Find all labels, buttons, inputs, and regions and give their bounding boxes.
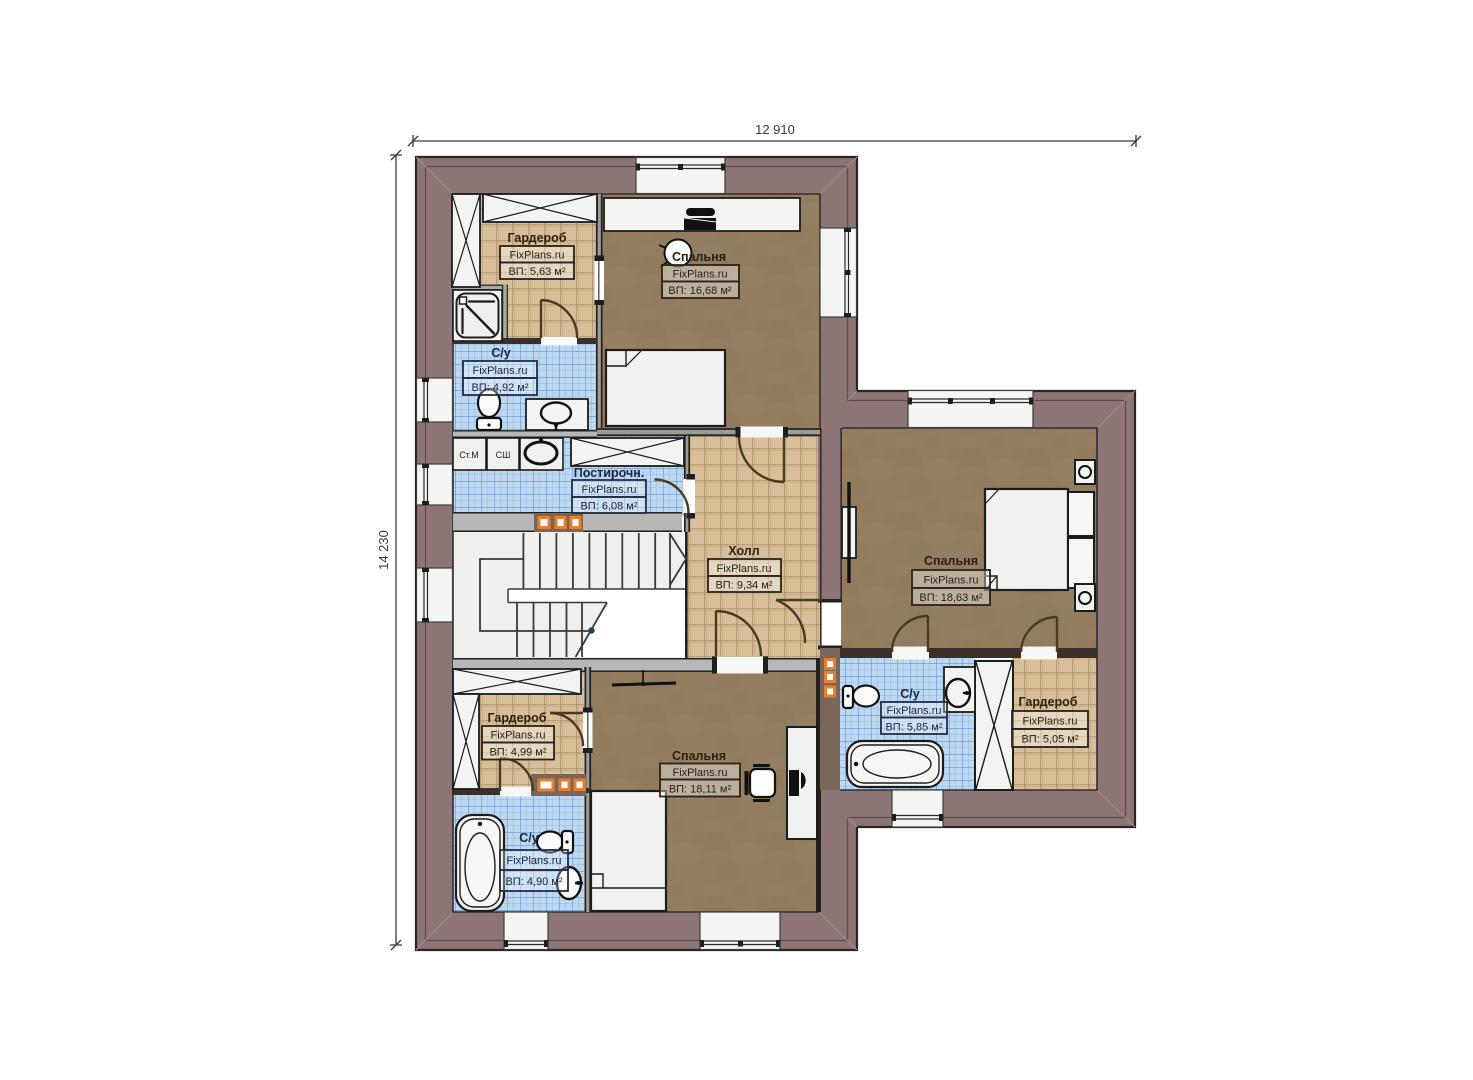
svg-text:FixPlans.ru: FixPlans.ru <box>1022 716 1077 728</box>
svg-text:ВП: 6,08 м²: ВП: 6,08 м² <box>580 501 637 513</box>
svg-text:Гардероб: Гардероб <box>1018 695 1077 709</box>
svg-text:Гардероб: Гардероб <box>507 231 566 245</box>
svg-text:С/у: С/у <box>900 687 920 701</box>
svg-text:ВП: 18,63 м²: ВП: 18,63 м² <box>919 592 983 604</box>
svg-text:Гардероб: Гардероб <box>487 711 546 725</box>
svg-text:ВП: 16,68 м²: ВП: 16,68 м² <box>668 285 732 297</box>
svg-text:FixPlans.ru: FixPlans.ru <box>472 365 527 377</box>
svg-text:FixPlans.ru: FixPlans.ru <box>506 855 561 867</box>
svg-text:ВП: 9,34 м²: ВП: 9,34 м² <box>715 580 772 592</box>
svg-text:FixPlans.ru: FixPlans.ru <box>923 575 978 587</box>
svg-text:Спальня: Спальня <box>672 749 726 763</box>
svg-text:ВП: 5,63 м²: ВП: 5,63 м² <box>508 266 565 278</box>
svg-text:FixPlans.ru: FixPlans.ru <box>716 563 771 575</box>
svg-text:FixPlans.ru: FixPlans.ru <box>490 730 545 742</box>
svg-text:С/у: С/у <box>519 831 539 845</box>
svg-text:ВП: 4,99 м²: ВП: 4,99 м² <box>489 747 546 759</box>
svg-text:С/у: С/у <box>491 346 511 360</box>
svg-text:12 910: 12 910 <box>755 122 795 137</box>
svg-text:ВП: 5,85 м²: ВП: 5,85 м² <box>885 722 942 734</box>
svg-text:Ст.М: Ст.М <box>459 450 479 460</box>
svg-text:Холл: Холл <box>728 544 759 558</box>
svg-text:14 230: 14 230 <box>376 530 391 570</box>
svg-text:ВП: 5,05 м²: ВП: 5,05 м² <box>1021 734 1078 746</box>
svg-text:Спальня: Спальня <box>924 554 978 568</box>
svg-text:ВП: 4,92 м²: ВП: 4,92 м² <box>471 382 528 394</box>
svg-text:Спальня: Спальня <box>672 250 726 264</box>
svg-text:ВП: 18,11 м²: ВП: 18,11 м² <box>669 784 732 796</box>
svg-text:FixPlans.ru: FixPlans.ru <box>886 705 941 717</box>
svg-text:FixPlans.ru: FixPlans.ru <box>509 250 564 262</box>
svg-text:FixPlans.ru: FixPlans.ru <box>672 269 727 281</box>
svg-text:ВП: 4,90 м²: ВП: 4,90 м² <box>505 876 562 888</box>
svg-text:FixPlans.ru: FixPlans.ru <box>581 484 636 496</box>
svg-text:FixPlans.ru: FixPlans.ru <box>672 767 727 779</box>
svg-text:Постирочн.: Постирочн. <box>574 466 644 480</box>
svg-text:СШ: СШ <box>496 450 511 460</box>
